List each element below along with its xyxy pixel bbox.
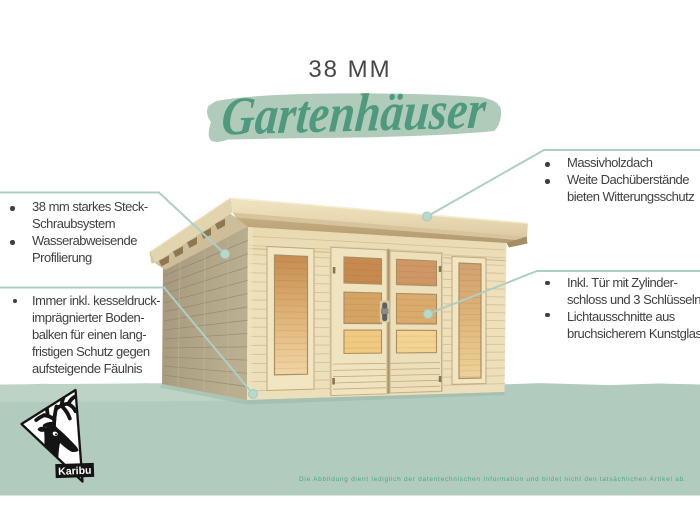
svg-text:Karibu: Karibu: [58, 465, 92, 478]
svg-text:Gartenhäuser: Gartenhäuser: [220, 80, 489, 147]
